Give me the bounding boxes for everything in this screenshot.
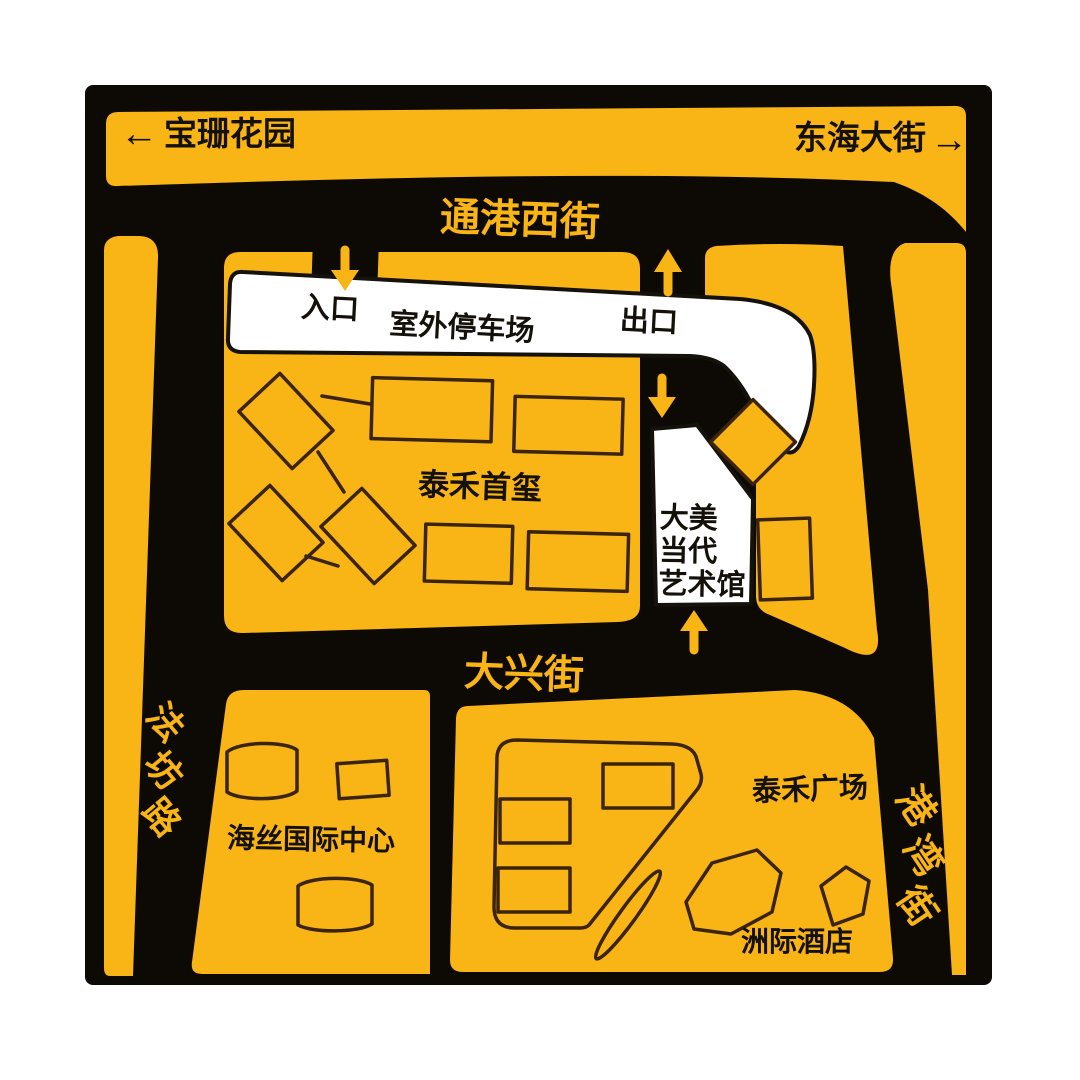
middle-street-label: 大兴街 xyxy=(463,650,584,698)
building-outline xyxy=(527,532,628,592)
right-arrow-icon: → xyxy=(930,119,968,161)
building-outline xyxy=(227,743,297,798)
building-outline xyxy=(498,868,570,912)
header-right-label: 东海大街 xyxy=(794,119,926,156)
museum-label-line: 大美 xyxy=(659,501,718,535)
hotel-label: 洲际酒店 xyxy=(741,926,853,957)
north-street-label: 通港西街 xyxy=(439,195,600,245)
southeast-block-label: 泰禾广场 xyxy=(751,771,868,808)
location-map: ← 宝珊花园 东海大街 → 通港西街 大兴街 法 坊 路 港 湾 街 入口 室外… xyxy=(0,0,1080,1080)
entrance-label: 入口 xyxy=(300,292,360,327)
building-outline xyxy=(298,878,372,931)
header-left-label: 宝珊花园 xyxy=(164,115,296,152)
central-block-label: 泰禾首玺 xyxy=(417,467,542,506)
map-canvas: ← 宝珊花园 东海大街 → 通港西街 大兴街 法 坊 路 港 湾 街 入口 室外… xyxy=(0,0,1080,1080)
building-outline xyxy=(500,799,570,843)
building-outline xyxy=(758,518,813,600)
building-outline xyxy=(424,524,512,583)
building-outline xyxy=(514,396,623,454)
building-outline xyxy=(337,760,389,798)
building-outline xyxy=(603,764,673,808)
left-arrow-icon: ← xyxy=(120,113,158,155)
museum-label-line: 艺术馆 xyxy=(658,566,746,602)
exit-label: 出口 xyxy=(619,304,679,340)
museum-label-line: 当代 xyxy=(659,534,718,568)
southwest-block-label: 海丝国际中心 xyxy=(227,823,396,857)
building-outline xyxy=(371,378,493,442)
